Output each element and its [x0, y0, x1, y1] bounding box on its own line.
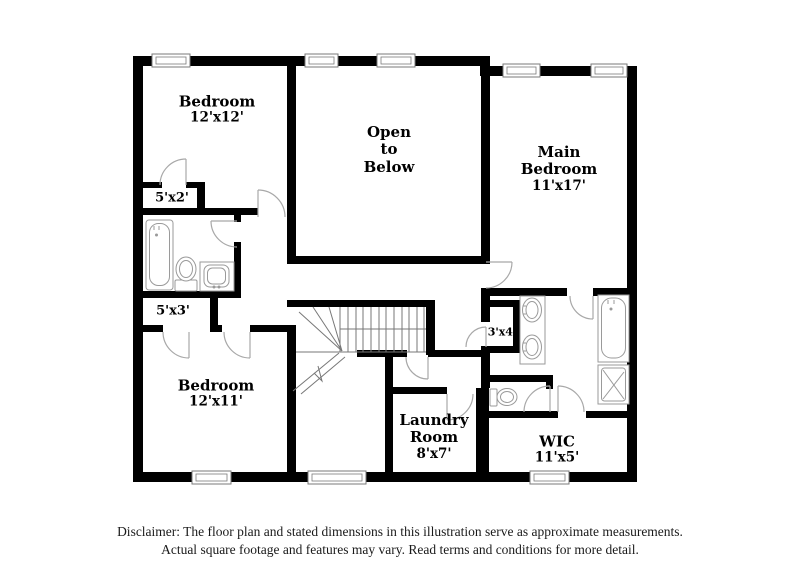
toilet-left	[175, 257, 197, 291]
toilet-wc	[490, 389, 517, 407]
room-label-laundry: Laundry Room 8'x7'	[399, 412, 468, 462]
room-label-closet-5x3: 5'x3'	[156, 305, 190, 320]
disclaimer-line-2: Actual square footage and features may v…	[0, 541, 800, 559]
stair-break-line	[293, 353, 345, 394]
window-bottom-3	[530, 471, 569, 484]
door-bedroom1	[258, 190, 285, 217]
disclaimer-line-1: Disclaimer: The floor plan and stated di…	[0, 523, 800, 541]
shower	[598, 365, 629, 404]
window-bottom-1	[192, 471, 231, 484]
window-top-1	[152, 54, 190, 67]
floorplan-drawing	[0, 0, 800, 582]
bathtub-left	[146, 220, 173, 290]
door-understair-closet	[406, 357, 428, 379]
room-label-closet-5x2: 5'x2'	[155, 192, 189, 207]
room-label-wic: WIC 11'x5'	[535, 434, 580, 467]
door-closet-5x2	[160, 159, 186, 185]
door-bedroom2	[224, 332, 250, 358]
door-bathroom-left	[211, 221, 237, 247]
door-closet-5x3	[163, 332, 189, 358]
door-main-bath	[570, 296, 593, 319]
bathtub-main	[598, 295, 629, 362]
disclaimer-text: Disclaimer: The floor plan and stated di…	[0, 523, 800, 559]
window-top-4	[503, 64, 540, 77]
window-top-3	[377, 54, 415, 67]
room-label-bedroom1: Bedroom 12'x12'	[179, 94, 256, 127]
room-label-closet-3x4: 3'x4'	[488, 327, 517, 340]
double-vanity	[520, 296, 545, 364]
door-closet-3x4	[466, 327, 486, 347]
sink-left	[200, 262, 234, 291]
window-top-5	[591, 64, 627, 77]
floorplan-canvas: Bedroom 12'x12' Open to Below Main Bedro…	[0, 0, 800, 582]
room-label-open-to-below: Open to Below	[364, 124, 415, 176]
door-wic	[558, 386, 584, 412]
room-label-bedroom2: Bedroom 12'x11'	[178, 378, 255, 411]
window-bottom-2	[308, 471, 366, 484]
door-main-bedroom	[486, 262, 512, 288]
window-top-2	[305, 54, 338, 67]
room-label-main-bedroom: Main Bedroom 11'x17'	[521, 144, 598, 194]
door-toilet-room	[524, 386, 550, 412]
